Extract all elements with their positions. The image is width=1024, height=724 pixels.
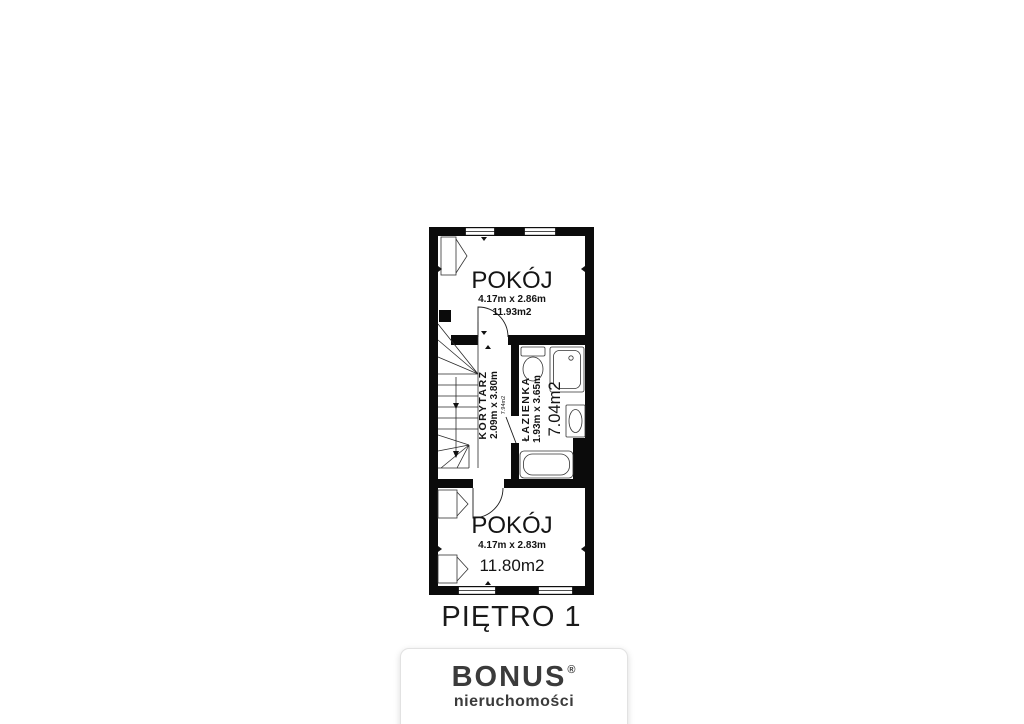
- logo-subtitle: nieruchomości: [401, 693, 627, 711]
- room-name: ŁAZIENKA: [520, 376, 532, 441]
- floor-label: PIĘTRO 1: [414, 601, 609, 634]
- window-symbol: [539, 587, 573, 594]
- room-dimensions: 1.93m x 3.65m: [532, 375, 543, 443]
- window-symbol: [525, 228, 556, 235]
- room-dimensions: 4.17m x 2.86m: [478, 294, 546, 305]
- room-dimensions: 4.17m x 2.83m: [478, 540, 546, 551]
- registered-trademark-icon: ®: [567, 664, 577, 676]
- interior-wall: [451, 335, 478, 345]
- floor-plan-drawing: POKÓJ 4.17m x 2.86m 11.93m2 KORYTARZ 2.0…: [429, 227, 594, 595]
- room-name: POKÓJ: [471, 512, 552, 539]
- interior-wall-shaft: [573, 438, 585, 479]
- agency-logo-card: BONUS® nieruchomości: [400, 648, 628, 724]
- bathroom-labels: ŁAZIENKA 1.93m x 3.65m 7.04m2: [520, 375, 564, 443]
- bathtub-icon: [520, 451, 573, 478]
- interior-wall-notch: [439, 310, 451, 322]
- interior-wall: [511, 443, 519, 479]
- room-name: KORYTARZ: [477, 370, 489, 439]
- room-dimensions: 2.09m x 3.80m: [489, 371, 500, 439]
- interior-wall: [508, 335, 585, 345]
- interior-wall: [504, 479, 585, 488]
- logo-brand: BONUS®: [401, 662, 627, 692]
- sink-icon: [566, 405, 585, 437]
- window-symbol: [459, 587, 496, 594]
- room-area: 11.93m2: [493, 307, 532, 318]
- room-bottom-labels: POKÓJ 4.17m x 2.83m 11.80m2: [471, 512, 552, 575]
- room-name: POKÓJ: [471, 267, 552, 294]
- interior-wall: [438, 479, 473, 488]
- logo-brand-text: BONUS: [452, 661, 567, 693]
- room-area: 11.80m2: [480, 556, 545, 575]
- page-background: POKÓJ 4.17m x 2.86m 11.93m2 KORYTARZ 2.0…: [0, 0, 1024, 724]
- room-area: 7.04m2: [546, 381, 564, 436]
- room-area: 7.94m2: [501, 396, 507, 414]
- window-symbol: [466, 228, 495, 235]
- interior-wall: [511, 345, 519, 416]
